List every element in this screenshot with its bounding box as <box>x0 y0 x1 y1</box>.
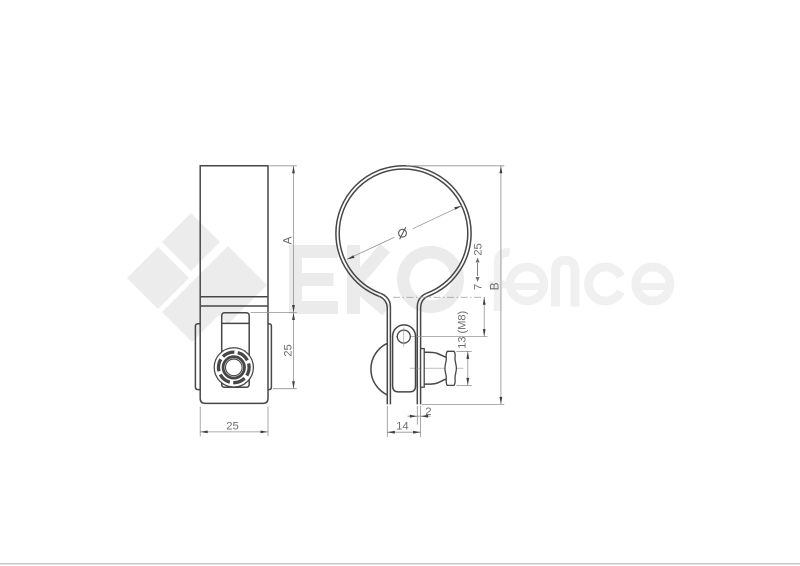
svg-text:2: 2 <box>425 406 431 418</box>
svg-text:B: B <box>487 282 501 290</box>
svg-text:A: A <box>280 236 294 244</box>
svg-text:13 (M8): 13 (M8) <box>457 311 469 349</box>
svg-text:25: 25 <box>473 243 485 256</box>
svg-text:25: 25 <box>283 344 295 357</box>
svg-text:25: 25 <box>226 420 239 432</box>
svg-text:7: 7 <box>473 284 485 290</box>
svg-text:14: 14 <box>396 420 409 432</box>
